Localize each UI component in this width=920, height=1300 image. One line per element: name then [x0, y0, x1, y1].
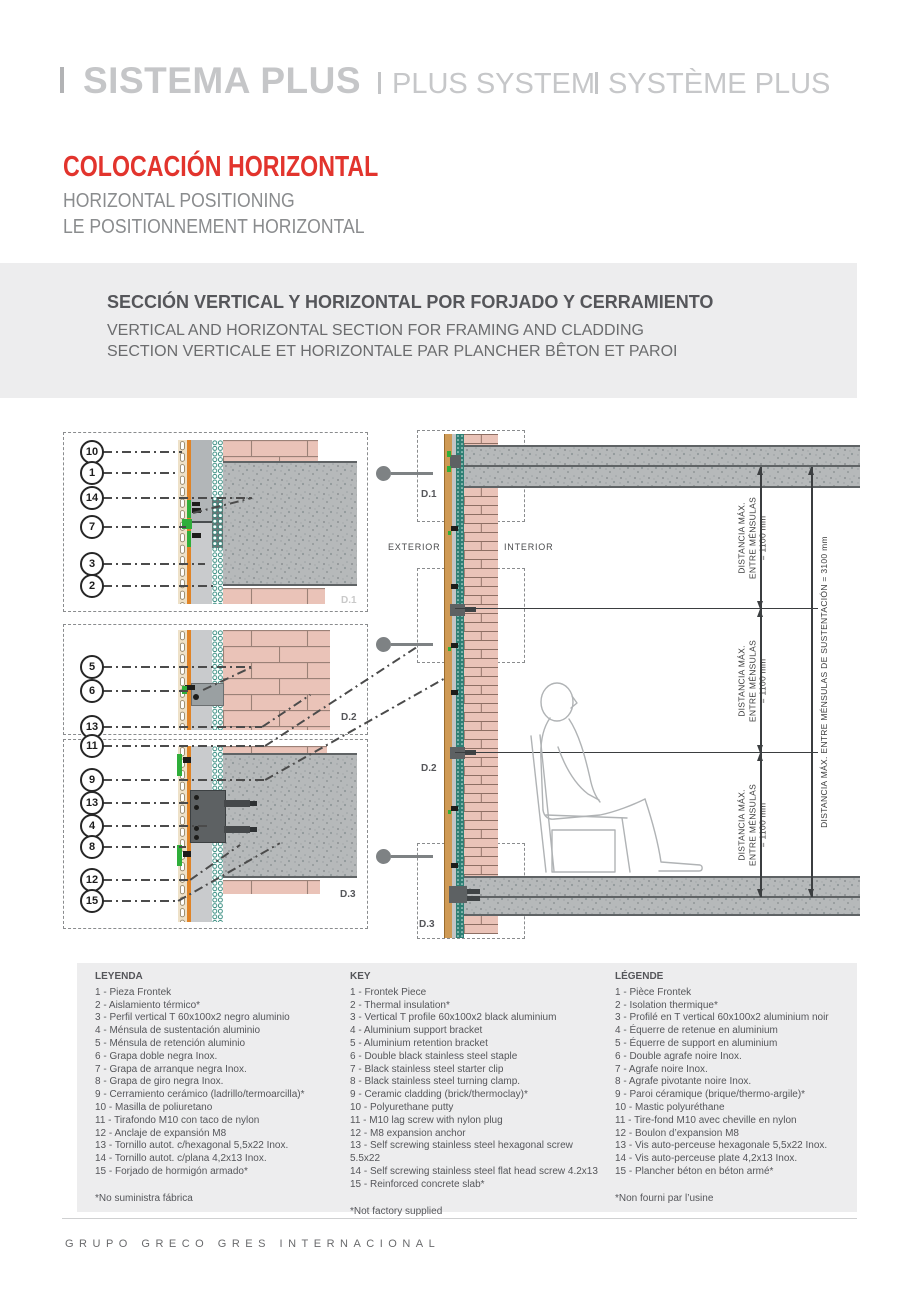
clip [448, 647, 451, 651]
section-subtitle-fr: SECTION VERTICALE ET HORIZONTALE PAR PLA… [107, 343, 678, 361]
page-subtitle-en: HORIZONTAL POSITIONING [63, 190, 326, 213]
callout-9: 9 [80, 768, 104, 792]
callout-2: 2 [80, 574, 104, 598]
legend-item: 14 - Self screwing stainless steel flat … [350, 1166, 600, 1179]
starter-bracket [450, 455, 461, 468]
page-subtitle-fr: LE POSITIONNEMENT HORIZONTAL [63, 216, 406, 239]
callout-13b: 13 [80, 791, 104, 815]
legend-column-en: KEY 1 - Frontek Piece2 - Thermal insulat… [350, 971, 600, 1218]
callout-leader [103, 879, 190, 881]
legend-item: 11 - Tirafondo M10 con taco de nylon [95, 1115, 345, 1128]
legend-item: 1 - Frontek Piece [350, 987, 600, 1000]
callout-7: 7 [80, 515, 104, 539]
detail-label-d1-section: D.1 [421, 489, 437, 500]
callout-leader [103, 666, 252, 668]
brick-wall [464, 487, 498, 877]
legend-item: 4 - Ménsula de sustentación aluminio [95, 1025, 345, 1038]
legend-item: 8 - Black stainless steel turning clamp. [350, 1076, 600, 1089]
legend-items: 1 - Pieza Frontek2 - Aislamiento térmico… [95, 987, 345, 1179]
cut-marker-line [391, 643, 433, 646]
legend-item: 3 - Perfil vertical T 60x100x2 negro alu… [95, 1012, 345, 1025]
dimension-line-3100 [811, 467, 813, 897]
legend-column-es: LEYENDA 1 - Pieza Frontek2 - Aislamiento… [95, 971, 345, 1206]
brick-band-bottom [223, 880, 320, 894]
callout-leader [103, 900, 178, 902]
slab-edge [223, 584, 357, 586]
legend-item: 1 - Pieza Frontek [95, 987, 345, 1000]
legend-title: LEYENDA [95, 971, 345, 984]
detail-label-d3-left: D.3 [340, 889, 356, 900]
screw [192, 502, 200, 506]
page-title: COLOCACIÓN HORIZONTAL [63, 151, 457, 184]
detail-label-d3-section: D.3 [419, 919, 435, 930]
retention-bracket [450, 604, 465, 616]
clip [448, 531, 451, 535]
brand-tertiary: SYSTÈME PLUS [608, 68, 830, 101]
legend-item: 6 - Grapa doble negra Inox. [95, 1051, 345, 1064]
starter-clip [187, 500, 191, 518]
legend-item: 7 - Agrafe noire Inox. [615, 1064, 865, 1077]
legend-item: 3 - Vertical T profile 60x100x2 black al… [350, 1012, 600, 1025]
brand-divider-1 [378, 72, 381, 94]
dim-text: = 1100 mm [757, 784, 768, 866]
slab-edge [223, 753, 357, 755]
legend-item: 7 - Grapa de arranque negra Inox. [95, 1064, 345, 1077]
anchor-bolt-tip [250, 801, 257, 806]
anchor-bolt [224, 800, 250, 807]
legend-footnote: *No suministra fábrica [95, 1193, 345, 1206]
dim-text: DISTANCIA MÁX. [736, 497, 747, 579]
starter-clip [187, 531, 191, 547]
frontek-tile-layer [178, 630, 187, 730]
legend-item: 13 - Tornillo autot. c/hexagonal 5,5x22 … [95, 1140, 345, 1153]
legend-item: 12 - Anclaje de expansión M8 [95, 1128, 345, 1141]
dim-label-bracket-spacing-3: DISTANCIA MÁX. ENTRE MÉNSULAS = 1100 mm [736, 784, 768, 866]
staple-clip [451, 806, 458, 811]
callout-leader [103, 726, 262, 728]
legend-item: 6 - Double agrafe noire Inox. [615, 1051, 865, 1064]
callout-11: 11 [80, 734, 104, 758]
brick-band-bottom [223, 588, 325, 604]
callout-leader [103, 825, 207, 827]
legend-item: 15 - Forjado de hormigón armado* [95, 1166, 345, 1179]
anchor-bolt-tip [250, 827, 257, 832]
anchor-bolt [224, 826, 250, 833]
dim-arrow [757, 609, 763, 617]
callout-8: 8 [80, 835, 104, 859]
callout-leader [103, 802, 190, 804]
profile-joint-line [191, 521, 212, 523]
legend-items: 1 - Frontek Piece2 - Thermal insulation*… [350, 987, 600, 1192]
slab-edge [464, 486, 860, 488]
legend-item: 15 - Reinforced concrete slab* [350, 1179, 600, 1192]
slab-reference-line [464, 896, 860, 898]
legend-item: 10 - Mastic polyuréthane [615, 1102, 865, 1115]
legend-item: 15 - Plancher béton en béton armé* [615, 1166, 865, 1179]
clip [183, 851, 191, 857]
catalog-page: SISTEMA PLUS PLUS SYSTEM SYSTÈME PLUS CO… [0, 0, 920, 1300]
slab-edge [464, 445, 860, 447]
callout-leader [103, 690, 190, 692]
legend-item: 8 - Grapa de giro negra Inox. [95, 1076, 345, 1089]
bolt-head [194, 826, 199, 831]
dim-text: ENTRE MÉNSULAS [747, 497, 758, 579]
legend-item: 4 - Équerre de retenue en aluminium [615, 1025, 865, 1038]
detail-label-d1-left: D.1 [341, 595, 357, 606]
bracket-bolt [467, 896, 480, 901]
legend-item: 11 - Tire-fond M10 avec cheville en nylo… [615, 1115, 865, 1128]
slab-reference-line [464, 465, 860, 467]
legend-item: 9 - Paroi céramique (brique/thermo-argil… [615, 1089, 865, 1102]
screw [192, 533, 201, 538]
legend-item: 3 - Profilé en T vertical 60x100x2 alumi… [615, 1012, 865, 1025]
t-profile [191, 630, 212, 730]
slab-edge [464, 914, 860, 916]
cut-marker-dot [376, 637, 391, 652]
cut-marker-dot [376, 849, 391, 864]
legend-item: 5 - Aluminium retention bracket [350, 1038, 600, 1051]
concrete-slab [223, 462, 357, 585]
legend-item: 13 - Self screwing stainless steel hexag… [350, 1140, 600, 1166]
callout-3: 3 [80, 552, 104, 576]
staple-clip [451, 863, 458, 868]
dim-text: DISTANCIA MÁX. [736, 640, 747, 722]
callout-6: 6 [80, 679, 104, 703]
legend-title: LÉGENDE [615, 971, 865, 984]
legend-item: 5 - Ménsula de retención aluminio [95, 1038, 345, 1051]
dim-arrow [757, 753, 763, 761]
starter-clip [447, 451, 451, 457]
dim-arrow [757, 467, 763, 475]
legend-item: 1 - Pièce Frontek [615, 987, 865, 1000]
legend-footnote: *Not factory supplied [350, 1206, 600, 1219]
support-bracket [449, 886, 467, 903]
cut-marker-line [391, 472, 433, 475]
staple-clip [451, 643, 458, 648]
callout-leader [103, 745, 265, 747]
dim-arrow [757, 745, 763, 753]
callout-5: 5 [80, 655, 104, 679]
reference-line [455, 608, 818, 609]
footer-company: GRUPO GRECO GRES INTERNACIONAL [65, 1238, 440, 1250]
callout-leader [103, 526, 186, 528]
legend-footnote: *Non fourni par l’usine [615, 1193, 865, 1206]
legend-item: 12 - M8 expansion anchor [350, 1128, 600, 1141]
dim-arrow [757, 889, 763, 897]
section-subtitle-en: VERTICAL AND HORIZONTAL SECTION FOR FRAM… [107, 322, 644, 340]
slab-edge [223, 876, 357, 878]
legend-column-fr: LÉGENDE 1 - Pièce Frontek2 - Isolation t… [615, 971, 865, 1206]
callout-15: 15 [80, 889, 104, 913]
starter-clip [177, 754, 182, 776]
starter-clip [447, 466, 451, 472]
cut-marker-line [391, 855, 433, 858]
footer-divider [62, 1218, 857, 1219]
bolt-head [194, 805, 199, 810]
legend-items: 1 - Pièce Frontek2 - Isolation thermique… [615, 987, 865, 1179]
legend-item: 8 - Agrafe pivotante noire Inox. [615, 1076, 865, 1089]
starter-clip [177, 845, 182, 866]
dim-label-bracket-spacing-1: DISTANCIA MÁX. ENTRE MÉNSULAS = 1100 mm [736, 497, 768, 579]
legend-item: 5 - Équerre de support en aluminium [615, 1038, 865, 1051]
legend-item: 9 - Cerramiento cerámico (ladrillo/termo… [95, 1089, 345, 1102]
staple-clip [451, 584, 458, 589]
bracket-bolt [467, 889, 480, 894]
legend-item: 10 - Polyurethane putty [350, 1102, 600, 1115]
brick-band-top [223, 440, 318, 461]
legend-title: KEY [350, 971, 600, 984]
dim-arrow [757, 601, 763, 609]
legend-item: 2 - Thermal insulation* [350, 1000, 600, 1013]
dim-text: DISTANCIA MÁX. [736, 784, 747, 866]
legend-item: 14 - Tornillo autot. c/plana 4,2x13 Inox… [95, 1153, 345, 1166]
callout-1: 1 [80, 461, 104, 485]
concrete-slab [223, 755, 357, 876]
callout-leader [103, 779, 265, 781]
cut-marker-dot [376, 466, 391, 481]
callout-leader [103, 472, 179, 474]
dim-label-total-spacing: DISTANCIA MÁX. ENTRE MÉNSULAS DE SUSTENT… [819, 536, 830, 828]
legend-item: 9 - Ceramic cladding (brick/thermoclay)* [350, 1089, 600, 1102]
legend-item: 4 - Aluminium support bracket [350, 1025, 600, 1038]
callout-leader [103, 497, 252, 499]
staple-clip [451, 690, 458, 695]
brick-wall [464, 915, 498, 934]
brand-secondary: PLUS SYSTEM [392, 68, 595, 101]
callout-leader [103, 585, 213, 587]
slab-edge [223, 461, 357, 463]
dim-arrow [808, 467, 814, 475]
dim-text: = 1100 mm [757, 640, 768, 722]
brand-accent-bar [60, 67, 64, 93]
callout-14: 14 [80, 486, 104, 510]
exterior-label: EXTERIOR [388, 542, 440, 552]
callout-leader [103, 563, 205, 565]
legend-item: 7 - Black stainless steel starter clip [350, 1064, 600, 1077]
legend-item: 10 - Masilla de poliuretano [95, 1102, 345, 1115]
detail-label-d2-left: D.2 [341, 712, 357, 723]
insulation-layer [212, 440, 223, 604]
dim-arrow [808, 889, 814, 897]
legend-item: 14 - Vis auto-perceuse plate 4,2x13 Inox… [615, 1153, 865, 1166]
seated-person-figure [495, 672, 715, 882]
legend-item: 11 - M10 lag screw with nylon plug [350, 1115, 600, 1128]
brand-primary: SISTEMA PLUS [83, 60, 361, 102]
legend-item: 12 - Boulon d’expansion M8 [615, 1128, 865, 1141]
legend-item: 2 - Aislamiento térmico* [95, 1000, 345, 1013]
dim-text: DISTANCIA MÁX. ENTRE MÉNSULAS DE SUSTENT… [819, 536, 830, 828]
callout-leader [103, 846, 186, 848]
clip [448, 810, 451, 814]
dim-label-bracket-spacing-2: DISTANCIA MÁX. ENTRE MÉNSULAS = 1100 mm [736, 640, 768, 722]
brand-divider-2 [595, 72, 598, 94]
legend-item: 6 - Double black stainless steel staple [350, 1051, 600, 1064]
bolt-head [194, 835, 199, 840]
screw [193, 694, 199, 700]
callout-leader [103, 451, 182, 453]
dim-text: ENTRE MÉNSULAS [747, 784, 758, 866]
detail-label-d2-section: D.2 [421, 763, 437, 774]
staple-clip [451, 526, 458, 531]
dim-text: ENTRE MÉNSULAS [747, 640, 758, 722]
clip [183, 757, 191, 763]
legend-item: 13 - Vis auto-perceuse hexagonale 5,5x22… [615, 1140, 865, 1153]
legend-item: 2 - Isolation thermique* [615, 1000, 865, 1013]
bolt-head [194, 795, 199, 800]
dim-text: = 1100 mm [757, 497, 768, 579]
section-title: SECCIÓN VERTICAL Y HORIZONTAL POR FORJAD… [107, 292, 713, 313]
interior-label: INTERIOR [504, 542, 553, 552]
